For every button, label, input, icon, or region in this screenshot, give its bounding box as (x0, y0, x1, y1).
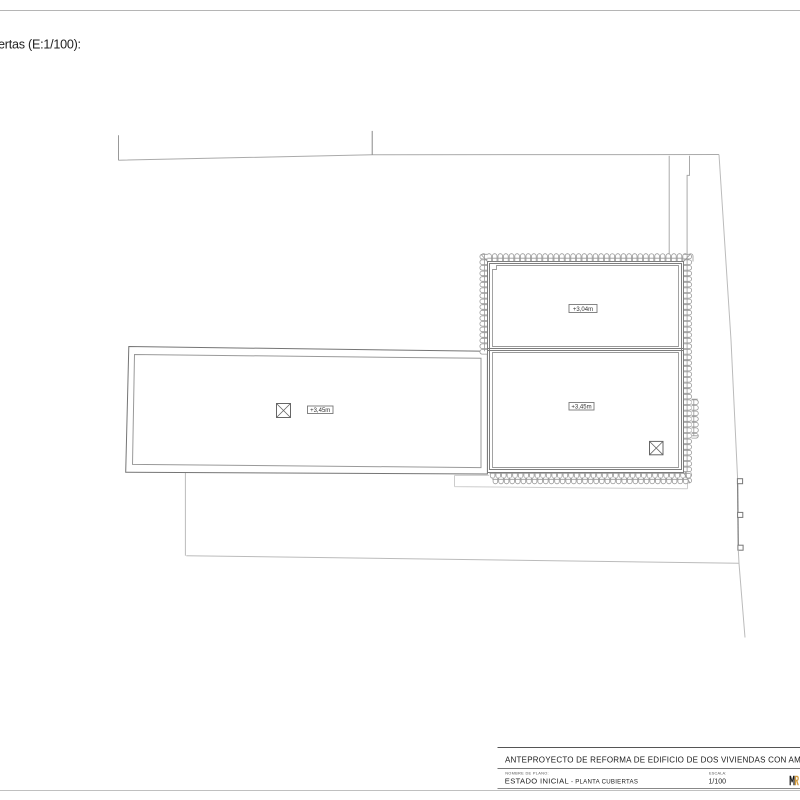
svg-text:ANTEPROYECTO DE REFORMA DE EDI: ANTEPROYECTO DE REFORMA DE EDIFICIO DE D… (505, 756, 800, 765)
svg-text:+3,45m: +3,45m (310, 408, 330, 414)
svg-text:ESTADO INICIAL - PLANTA CUBIER: ESTADO INICIAL - PLANTA CUBIERTAS (505, 776, 638, 785)
svg-text:ertas (E:1/100):: ertas (E:1/100): (0, 37, 81, 51)
svg-text:NOMBRE DE PLANO:: NOMBRE DE PLANO: (505, 770, 549, 775)
svg-text:ESCALA:: ESCALA: (709, 770, 727, 775)
svg-text:+3,45m: +3,45m (571, 405, 591, 411)
svg-text:+3,04m: +3,04m (573, 307, 593, 313)
svg-text:1/100: 1/100 (709, 778, 727, 785)
